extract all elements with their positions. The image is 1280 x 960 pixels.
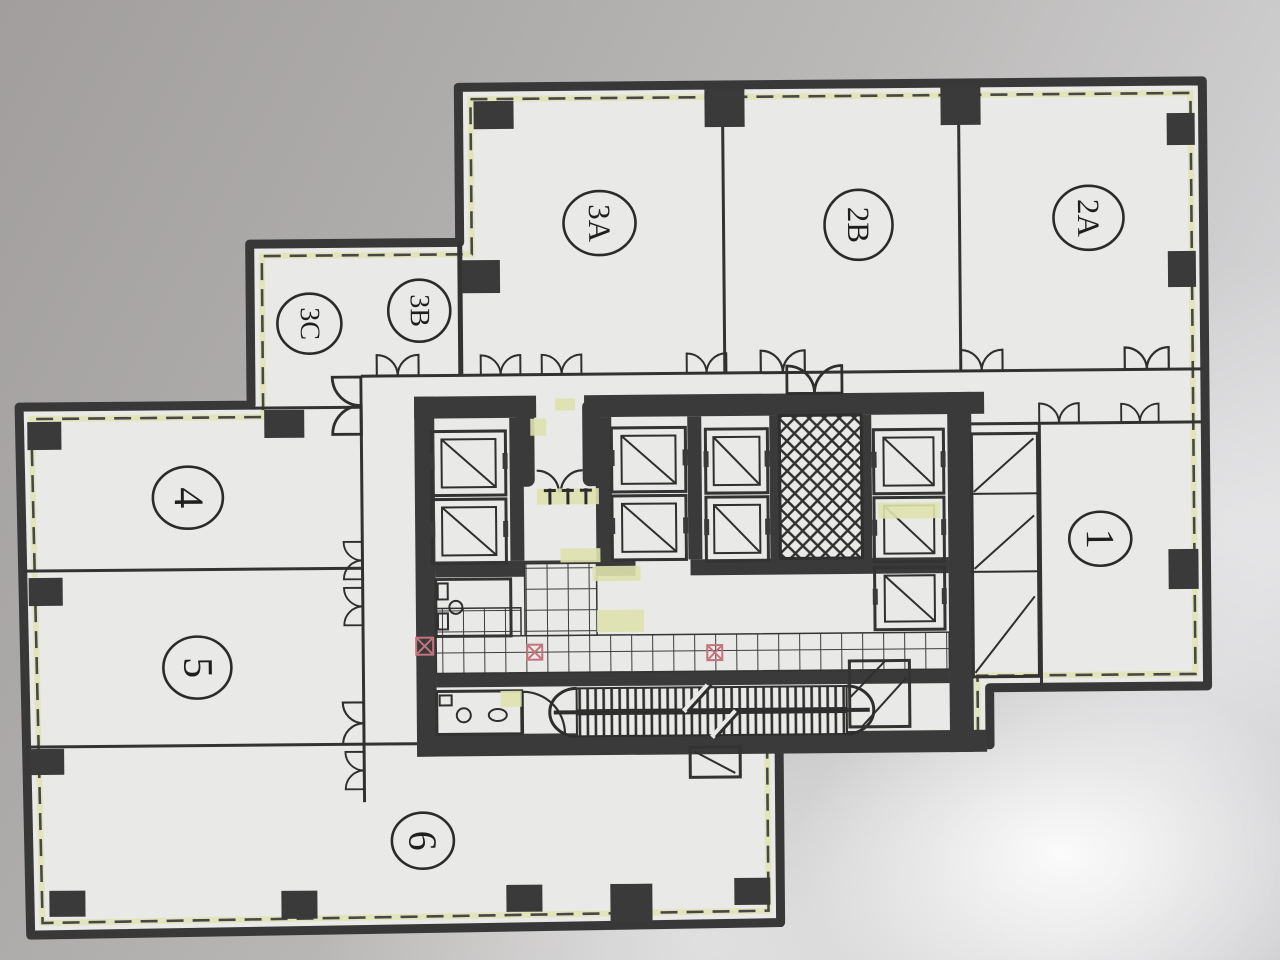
floor-plan-photo: 3A 2B 2A 3B 3C 4 (0, 0, 1280, 960)
staircase-icon (550, 684, 874, 739)
svg-text:1: 1 (1078, 529, 1123, 549)
svg-text:2B: 2B (841, 207, 876, 243)
lobby-pillar (516, 401, 535, 487)
turnstile-ticks (544, 488, 592, 504)
lobby-pillar (582, 400, 601, 486)
shaft-crosshatch (779, 415, 862, 559)
lobby-tiles (524, 563, 597, 636)
svg-text:3C: 3C (294, 307, 325, 340)
svg-text:3B: 3B (404, 294, 435, 327)
corridor-tiles (436, 632, 949, 673)
svg-text:4: 4 (165, 487, 211, 508)
svg-text:5: 5 (174, 657, 220, 678)
svg-text:6: 6 (400, 830, 445, 850)
svg-text:2A: 2A (1071, 199, 1106, 238)
floor-plan: 3A 2B 2A 3B 3C 4 (16, 81, 1209, 935)
svg-text:3A: 3A (582, 204, 617, 243)
